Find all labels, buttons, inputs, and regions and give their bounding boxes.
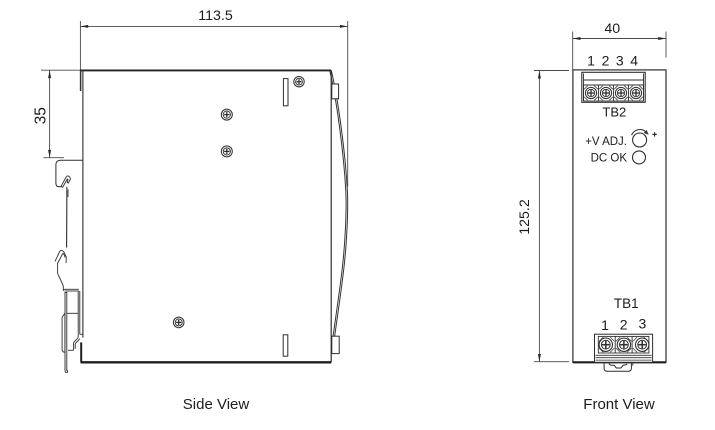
- svg-text:3: 3: [639, 316, 647, 332]
- svg-text:TB1: TB1: [614, 296, 639, 311]
- svg-text:1: 1: [587, 53, 595, 69]
- svg-text:Side View: Side View: [183, 396, 250, 413]
- svg-text:DC OK: DC OK: [591, 152, 628, 164]
- svg-text:Front View: Front View: [583, 396, 655, 413]
- svg-text:40: 40: [604, 21, 620, 37]
- svg-text:3: 3: [616, 53, 624, 69]
- svg-text:125.2: 125.2: [517, 199, 533, 235]
- svg-text:TB2: TB2: [602, 105, 626, 120]
- svg-text:1: 1: [601, 317, 609, 333]
- svg-text:113.5: 113.5: [198, 8, 233, 24]
- svg-text:35: 35: [32, 107, 49, 124]
- svg-text:2: 2: [620, 316, 628, 332]
- svg-text:2: 2: [602, 53, 610, 69]
- svg-text:4: 4: [630, 53, 638, 69]
- svg-text:+V ADJ.: +V ADJ.: [585, 136, 627, 148]
